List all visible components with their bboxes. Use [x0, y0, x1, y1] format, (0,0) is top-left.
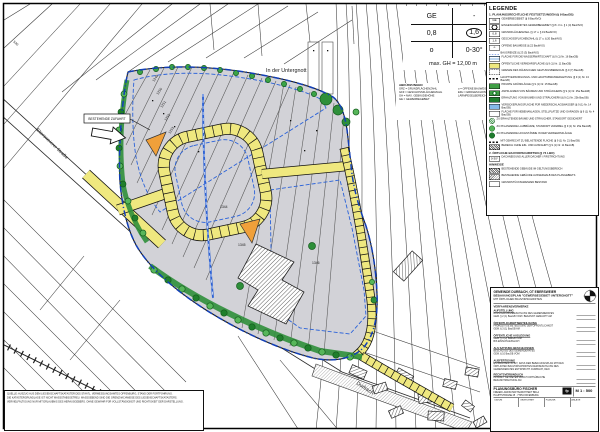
- abbreviations-box: ABKÜRZUNGEN GRZ = GRUNDFLÄCHENZAHLGFZ = …: [396, 83, 496, 120]
- hatch-symbol: [489, 168, 500, 174]
- text-line: DIE KATASTERGRUNDLAGE IST NICHT MASSSTAB…: [7, 397, 201, 400]
- signature-lines: [575, 310, 596, 320]
- legend-title: LEGENDE: [489, 6, 596, 12]
- legend-item-label: ZU PFLANZENDE LAUBBÄUME, STANDORT VARIAB…: [497, 125, 597, 128]
- legend-item: ÖFFENTLICHE VERKEHRSFLÄCHE (§ 9 (1) Nr. …: [489, 63, 596, 69]
- legend-item: GEGEWERBEGEBIET (§ 8 BauNVO): [489, 18, 596, 24]
- firm-logo: fp: [563, 388, 572, 395]
- legend-item: 0-30°DACHNEIGUNG ALLER DÄCHER / FIRSTRIC…: [489, 156, 596, 162]
- titleblock-section-line: BIS EINSCHLIESSLICH: [494, 340, 575, 343]
- source-note-lines: QUELLE: AUSZUG AUS DEM LIEGENSCHAFTSKATA…: [5, 391, 203, 406]
- plain-symbol: 0-30°: [489, 156, 500, 162]
- legend-item: HAUPTVERSORGUNGS- UND HAUPTABWASSERLEITU…: [489, 76, 596, 82]
- titleblock-section-line: BEKANNTMACHUNG AM: [494, 380, 575, 383]
- gfz-circled-value: 1,6: [466, 28, 482, 38]
- zoning-template-table: GE - 0,8 1,6 o 0-30°: [411, 8, 495, 58]
- legend-item-label: VERSICKERUNGSFLÄCHE FÜR NIEDERSCHLAGSWAS…: [502, 104, 597, 110]
- legend-item-label: ÖFFENTLICHE VERKEHRSFLÄCHE (§ 9 (1) Nr. …: [502, 63, 597, 66]
- firm-cell: ANLAGE: [570, 398, 595, 407]
- legend-item-label: DACHNEIGUNG ALLER DÄCHER / FIRSTRICHTUNG: [502, 156, 597, 159]
- legend-item: FLÄCHE FÜR DIE WASSERWIRTSCHAFT (§ 9 (1)…: [489, 56, 596, 62]
- hatch-symbol: [489, 144, 500, 150]
- plain-symbol: 0,8: [489, 31, 500, 37]
- plain-symbol: GE: [489, 18, 500, 24]
- firm-cell: PLAN-NR.: [545, 398, 571, 407]
- blackdash-symbol: [489, 141, 499, 143]
- parcel-number: 1345: [238, 243, 246, 247]
- road-number-label: 530: [12, 40, 19, 47]
- legend-item-label: OFFENE BAUWEISE (§ 22 BauNVO): [502, 45, 597, 48]
- grz-cell: 0,8: [411, 25, 453, 42]
- bauweise-cell: o: [411, 42, 453, 59]
- plan-sheet: BESTEHENDE ZUFAHRT In der Untergnott Ebe…: [0, 0, 600, 432]
- greenD-symbol: [489, 97, 500, 103]
- bluedash-symbol: [489, 54, 499, 55]
- area-name-label: In der Untergnott: [266, 68, 307, 74]
- yellow-symbol: [489, 63, 500, 69]
- north-arrow-icon: [583, 289, 597, 303]
- green-symbol: [489, 83, 500, 89]
- legend-item-label: ZU ERHALTENDE BÄUME UND STRÄUCHER, STAND…: [497, 118, 597, 121]
- blue-symbol: [489, 104, 500, 110]
- legend-item: ANPFLANZEN VON BÄUMEN UND STRÄUCHERN (§ …: [489, 90, 596, 96]
- firm-cells: DATUMGEZEICHNETPLAN-NR.ANLAGE: [494, 398, 596, 408]
- legend-section-title: HINWEISE: [489, 164, 596, 167]
- legend-item: PRIVATE GRÜNFLÄCHE (§ 9 (1) Nr. 15 BauGB…: [489, 83, 596, 89]
- text-line: GE = GEWERBEGEBIET: [399, 98, 453, 102]
- legend-item: BESTEHENDE GEBÄUDE AUSSERHALB DES PLANGE…: [489, 175, 596, 181]
- legend-item-label: GRENZE DES RÄUMLICHEN GELTUNGSBEREICHS (…: [502, 70, 597, 73]
- signature-lines: [575, 347, 596, 357]
- legend-item: ZU PFLANZENDE LAUBBÄUME, STANDORT VARIAB…: [489, 125, 596, 131]
- source-note-box: QUELLE: AUSZUG AUS DEM LIEGENSCHAFTSKATA…: [4, 390, 204, 431]
- legend-item: ZU PFLANZENDE HOCHSTÄMME IN DER VERKEHRS…: [489, 133, 596, 139]
- legend-item-label: BAUGRENZE (§ 23 (3) BauNVO): [501, 52, 597, 55]
- signature-lines: [575, 360, 596, 372]
- titleblock-section-line: GEMEINDERATES ENTSPRICHT. DURBACH, DEN: [494, 368, 575, 371]
- hatch2-symbol: [489, 175, 500, 181]
- gb-symbol: [489, 70, 500, 76]
- legend-item-label: ERHALTUNG VON BÄUMEN UND STRÄUCHERN (§ 9…: [502, 97, 597, 100]
- signature-lines: [575, 374, 596, 384]
- legend-item-label: GEWERBEGEBIET (§ 8 BauNVO): [502, 18, 597, 21]
- titleblock-section: ÖFFENTLICHE AUSLEGUNGGEM. § 3 (2) BauGB …: [494, 335, 596, 345]
- legend-section-title: 2. ÖRTLICHE BAUVORSCHRIFTEN (§ 74 LBO): [489, 152, 596, 155]
- titleblock-section-line: GEM. § 10 BauGB VOM: [494, 353, 575, 356]
- legend-item: 0,8GRUNDFLÄCHENZAHL (§ 17 u. § 19 BauNVO…: [489, 31, 596, 37]
- circle-symbol: [489, 25, 500, 31]
- legend-item: BEREICH OHNE EIN- UND AUSFAHRT (§ 9 (1) …: [489, 144, 596, 150]
- treeD-symbol: [489, 133, 495, 139]
- legend-panel: LEGENDE 1. PLANUNGSRECHTLICHE FESTSETZUN…: [486, 2, 599, 216]
- legend-item-label: ANPFLANZEN VON BÄUMEN UND STRÄUCHERN (§ …: [502, 90, 597, 93]
- legend-item: GRENZE DES RÄUMLICHEN GELTUNGSBEREICHS (…: [489, 70, 596, 76]
- legend-item-label: HAUPTVERSORGUNGS- UND HAUPTABWASSERLEITU…: [501, 76, 597, 82]
- blackdash-symbol: [489, 78, 499, 80]
- legend-item: BESTEHENDE GEBÄUDE IM GELTUNGSBEREICH: [489, 168, 596, 174]
- parcel-number: 1344: [220, 205, 228, 209]
- legend-section-title: 1. PLANUNGSRECHTLICHE FESTSETZUNGEN (§ 9…: [489, 14, 596, 17]
- legend-item: FLÄCHE FÜR NEBENANLAGEN, STELLPLÄTZE UND…: [489, 111, 596, 117]
- scale-value: M 1 : 500: [573, 388, 596, 397]
- legend-item: MIT GEHRECHT ZU BELASTENDE FLÄCHE (§ 9 (…: [489, 140, 596, 143]
- plainB-symbol: [489, 111, 500, 117]
- abbreviations-lines: GRZ = GRUNDFLÄCHENZAHLGFZ = GESCHOSSFLÄC…: [399, 88, 496, 102]
- titleblock-section: ÖFFENTLICHKEITSBETEILIGUNGFRÜHZEITIGE BE…: [494, 322, 596, 332]
- titleblock-section-line: GEM. § 2 (1) BauGB VOM / BEKANNT GEMACHT…: [494, 315, 575, 318]
- plain-symbol: o: [489, 45, 500, 51]
- titleblock-section: ALS SATZUNG BESCHLOSSENBESCHLUSS DES GEM…: [494, 347, 596, 357]
- tree-symbol: [489, 125, 495, 131]
- legend-item-label: BEREICH OHNE EIN- UND AUSFAHRT (§ 9 (1) …: [502, 144, 597, 147]
- municipality-title: GEMEINDE DURBACH, OT EBERSWEIER: [494, 291, 574, 295]
- text-line: QUELLE: AUSZUG AUS DEM LIEGENSCHAFTSKATA…: [7, 393, 201, 396]
- legend-item: VERSICKERUNGSFLÄCHE FÜR NIEDERSCHLAGSWAS…: [489, 104, 596, 110]
- legend-item-label: BESTEHENDE GEBÄUDE AUSSERHALB DES PLANGE…: [502, 175, 597, 178]
- text-line: VERVIELFÄLTIGUNG NUR MIT ERLAUBNIS DES H…: [7, 401, 201, 404]
- titleblock-sections: AUFSTELLUNGAUFSTELLUNGSBESCHLUSS DES GEM…: [494, 310, 596, 384]
- bluelines-symbol: [489, 56, 500, 62]
- firm-cell: DATUM: [494, 398, 520, 407]
- legend-item: ZU ERHALTENDE BÄUME UND STRÄUCHER, STAND…: [489, 118, 596, 124]
- legend-item-label: GRUNDFLÄCHENZAHL (§ 17 u. § 19 BauNVO): [502, 31, 597, 34]
- street-name-label: Ebersweierer Straße: [35, 127, 69, 160]
- titleblock-section: RECHTSVERBINDLICHIN KRAFT GETRETEN DURCH…: [494, 374, 596, 384]
- callout-label: BESTEHENDE ZUFAHRT: [88, 117, 125, 121]
- legend-item: ERHALTUNG VON BÄUMEN UND STRÄUCHERN (§ 9…: [489, 97, 596, 103]
- plain-symbol: [489, 181, 500, 187]
- legend-item-label: FLÄCHE FÜR DIE WASSERWIRTSCHAFT (§ 9 (1)…: [502, 56, 597, 59]
- legend-sections: 1. PLANUNGSRECHTLICHE FESTSETZUNGEN (§ 9…: [489, 14, 596, 187]
- firm-cell: GEZEICHNET: [519, 398, 545, 407]
- firm-address-2: HAUPTSTRASSE 25 · 77654 OFFENBURG: [494, 394, 562, 397]
- title-block: GEMEINDE DURBACH, OT EBERSWEIER BEBAUUNG…: [490, 287, 599, 432]
- titleblock-section-line: GEM. § 3 (1) BauGB AM: [494, 328, 575, 331]
- legend-item-label: GESCHOSSFLÄCHENZAHL (§ 17 u. § 20 BauNVO…: [502, 38, 597, 41]
- legend-item: GRUNDSTÜCKSGRENZEN BESTAND: [489, 181, 596, 187]
- legend-item-label: PRIVATE GRÜNFLÄCHE (§ 9 (1) Nr. 15 BauGB…: [502, 83, 597, 86]
- legend-item: oOFFENE BAUWEISE (§ 22 BauNVO): [489, 45, 596, 51]
- legend-item-label: FLÄCHE FÜR NEBENANLAGEN, STELLPLÄTZE UND…: [502, 111, 597, 117]
- legend-item: EINGESCHRÄNKTES GEWERBEGEBIET (§ 8 i.V.m…: [489, 25, 596, 31]
- treeH-symbol: [489, 118, 495, 124]
- procedure-notes-title: VERFAHRENSVERMERKE: [494, 304, 596, 309]
- legend-item-label: GRUNDSTÜCKSGRENZEN BESTAND: [502, 181, 597, 184]
- signature-lines: [575, 335, 596, 345]
- legend-item: BAUGRENZE (§ 23 (3) BauNVO): [489, 52, 596, 55]
- legend-item: 1,6GESCHOSSFLÄCHENZAHL (§ 17 u. § 20 Bau…: [489, 38, 596, 44]
- legend-item-label: ZU PFLANZENDE HOCHSTÄMME IN DER VERKEHRS…: [497, 133, 597, 136]
- signature-lines: [575, 322, 596, 332]
- legend-item-label: BESTEHENDE GEBÄUDE IM GELTUNGSBEREICH: [502, 168, 597, 171]
- parcel-number: 1346: [312, 261, 320, 265]
- legend-item-label: MIT GEHRECHT ZU BELASTENDE FLÄCHE (§ 9 (…: [501, 140, 597, 143]
- titleblock-section: AUFSTELLUNGAUFSTELLUNGSBESCHLUSS DES GEM…: [494, 310, 596, 320]
- plan-subtitle: MIT ÖRTLICHEN BAUVORSCHRIFTEN: [494, 298, 574, 301]
- greenT-symbol: [489, 90, 500, 96]
- plain-symbol: 1,6: [489, 38, 500, 44]
- legend-item-label: EINGESCHRÄNKTES GEWERBEGEBIET (§ 8 i.V.m…: [502, 25, 597, 28]
- titleblock-section: AUSFERTIGUNGES WIRD BESTÄTIGT, DASS DER …: [494, 360, 596, 372]
- firm-strip: PLANUNGSBÜRO FISCHER FREIER LANDSCHAFTSA…: [494, 386, 596, 397]
- zone-type-cell: GE: [411, 8, 453, 25]
